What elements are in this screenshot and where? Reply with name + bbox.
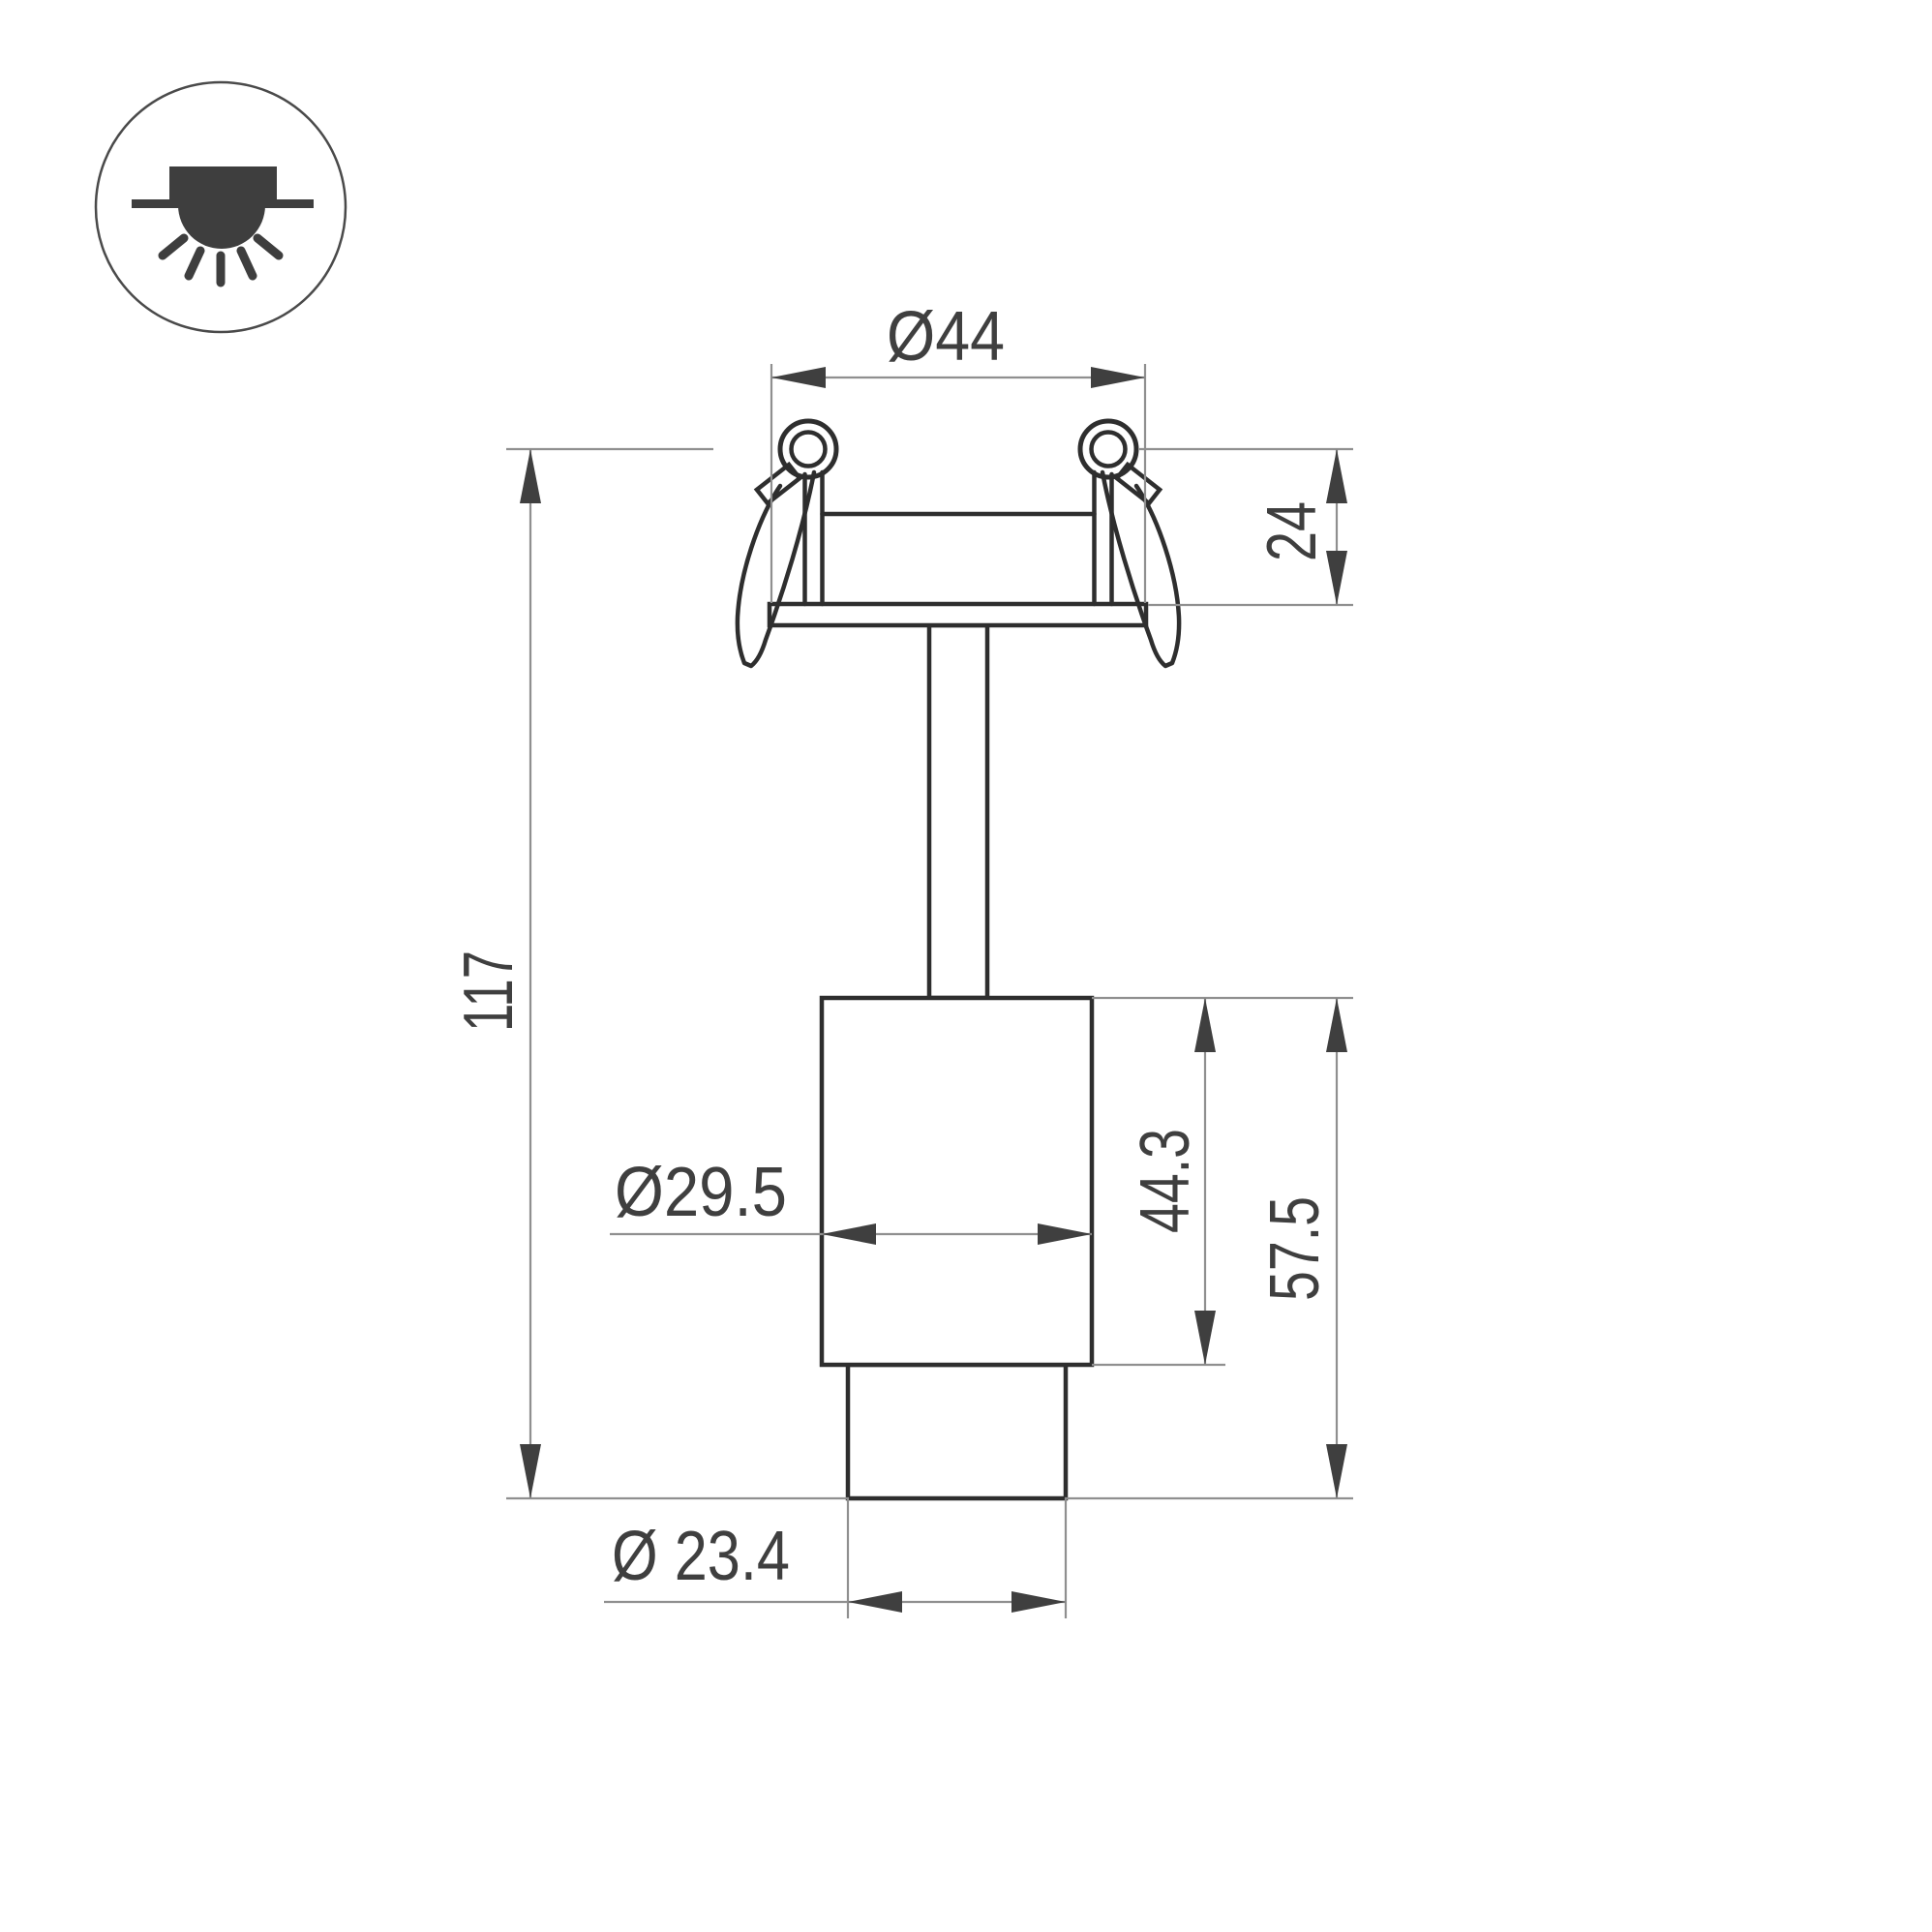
dim-recess-depth-label: 24 — [1253, 501, 1331, 561]
recess-cup — [805, 472, 1112, 604]
dim-tube-diameter-label: Ø 23.4 — [612, 1518, 790, 1595]
dim-lower-section-height-label: 57.5 — [1256, 1196, 1334, 1301]
drawing-canvas: Ø44 24 117 Ø29.5 44.3 — [0, 0, 1932, 1932]
clip-wing-left — [738, 472, 814, 666]
spring-clip-left — [738, 465, 814, 666]
stem — [929, 625, 987, 998]
dim-cutout-diameter-label: Ø44 — [887, 298, 1005, 376]
mounting-ring-left — [780, 421, 836, 477]
driver-body — [822, 998, 1092, 1365]
spring-clip-right — [1102, 465, 1179, 666]
technical-drawing-page: Ø44 24 117 Ø29.5 44.3 — [0, 0, 1932, 1932]
dim-cutout-diameter: Ø44 — [771, 298, 1145, 603]
recessed-downlight-mount-icon — [96, 82, 346, 332]
trim-flange — [770, 604, 1146, 625]
dim-recess-depth: 24 — [1139, 449, 1353, 605]
mounting-ring-right — [1080, 421, 1136, 477]
dim-overall-height-label: 117 — [450, 951, 528, 1032]
light-tube — [848, 1365, 1066, 1498]
dim-lower-section-height: 57.5 — [1256, 998, 1347, 1498]
luminaire-section-view — [738, 421, 1179, 1498]
dim-body-height-label: 44.3 — [1127, 1129, 1204, 1233]
clip-wing-right — [1102, 472, 1179, 666]
dim-body-diameter-label: Ø29.5 — [615, 1154, 787, 1231]
icon-fixture-block — [169, 166, 277, 203]
dim-body-height: 44.3 — [1092, 998, 1353, 1365]
dim-tube-diameter: Ø 23.4 — [604, 1498, 1066, 1618]
